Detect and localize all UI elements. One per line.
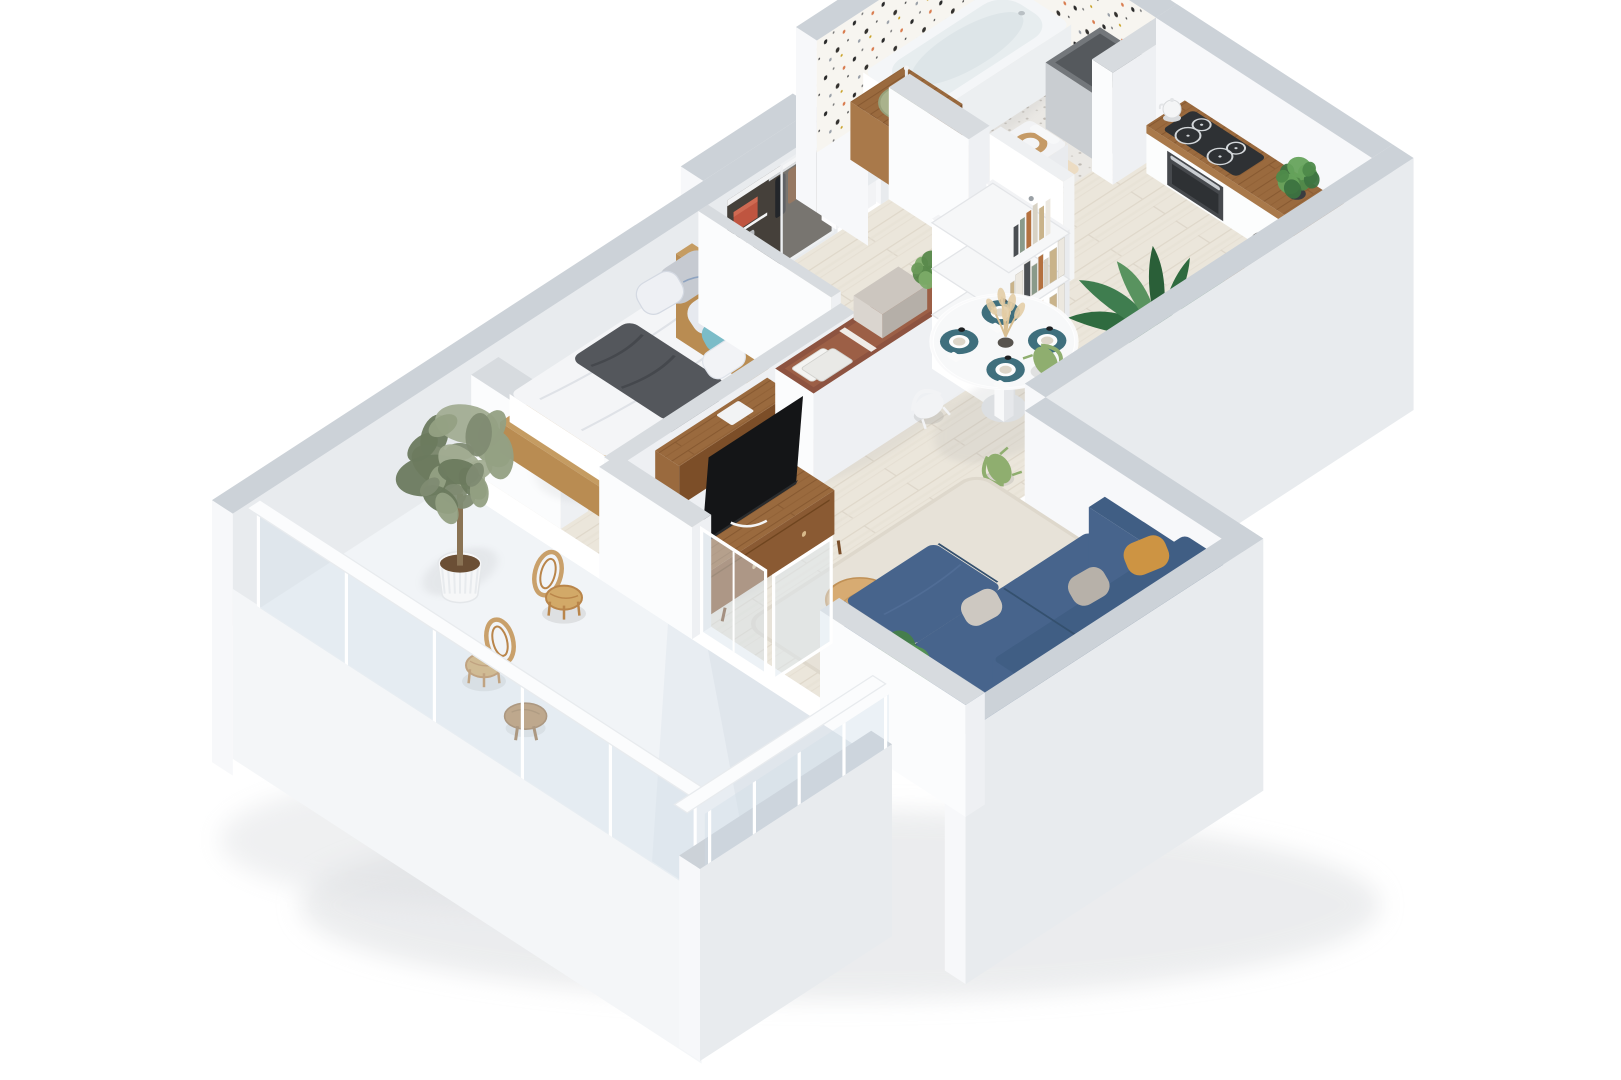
bathroom-door-handle bbox=[1029, 196, 1034, 201]
floorplan-3d-render bbox=[0, 0, 1621, 1080]
page bbox=[0, 0, 1621, 1080]
